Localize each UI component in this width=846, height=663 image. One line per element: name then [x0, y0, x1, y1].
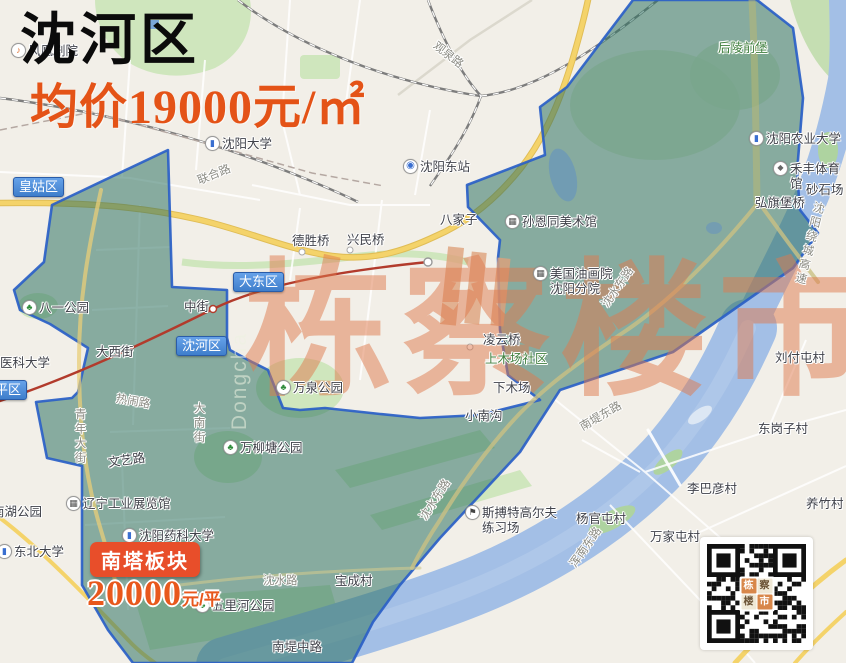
qr-logo-tile: 楼 [741, 594, 756, 609]
map-label: 上木场社区 [485, 352, 548, 367]
map-label: 沈阳大学 [222, 137, 272, 152]
qr-logo-tile: 栋 [741, 578, 756, 593]
map-label: 观泉路 [430, 40, 466, 72]
map-label: 东北大学 [14, 545, 64, 560]
qr-code: 栋察楼市 [700, 537, 813, 650]
map-label: 砂石场 [806, 183, 844, 198]
map-label: 李巴彦村 [687, 482, 737, 497]
map-label: 大南街 [191, 402, 205, 446]
map-label: 五里河公园 [212, 599, 275, 614]
map-label: 沈阳农业大学 [766, 132, 841, 147]
nanta-price-unit: 元/平 [182, 590, 221, 609]
qr-center-logo: 栋察楼市 [739, 576, 774, 611]
museum-icon: ▦ [533, 266, 548, 281]
map-label: 中街 [184, 300, 209, 315]
nanta-price: 20000元/平 [87, 572, 221, 614]
map-label: 刘付屯村 [775, 351, 825, 366]
museum-icon: ▦ [66, 496, 81, 511]
map-label: 辽宁工业展览馆 [83, 497, 171, 512]
map-label: 热闹路 [115, 393, 151, 412]
map-label: 弘旗堡桥 [755, 196, 805, 211]
map-label: 沈水东路 [418, 477, 454, 523]
map-label: 杨官屯村 [576, 512, 626, 527]
district-name-badge: 大东区 [233, 272, 284, 292]
map-label: 浑南东路 [568, 525, 605, 570]
map-label: 联合路 [196, 163, 233, 188]
map-label: 斯搏特高尔夫 练习场 [482, 506, 557, 536]
golf-icon: ⚑ [465, 505, 480, 520]
map-label: 凌云桥 [483, 333, 521, 348]
bus-icon: ▮ [0, 544, 12, 559]
district-title: 沈河区 [20, 12, 200, 68]
park-icon: ♣ [223, 440, 238, 455]
nanta-price-value: 20000 [87, 573, 182, 613]
map-label: 万泉公园 [293, 381, 343, 396]
map-label: 养竹村 [806, 497, 844, 512]
map-label: 美国油画院 沈阳分院 [550, 267, 613, 297]
average-price-title: 均价19000元/㎡ [30, 84, 365, 132]
map-label: 沈水路 [263, 575, 298, 589]
map-label: 文艺路 [107, 451, 146, 471]
map-label: 大西街 [96, 345, 134, 360]
park-icon: ♣ [276, 380, 291, 395]
stadium-icon: ◆ [773, 161, 788, 176]
rail-icon: ◉ [403, 159, 418, 174]
map-label: 八一公园 [39, 301, 89, 316]
map-label: 南堤东路 [578, 400, 625, 435]
map-label: 东岗子村 [758, 422, 808, 437]
map-label: 医科大学 [0, 356, 50, 371]
bus-icon: ▮ [749, 131, 764, 146]
map-canvas[interactable]: 栋察楼市 Dongcha 沈阳大学▮沈阳东站◉观泉路联合路八家子德胜桥兴民桥孙恩… [0, 0, 846, 663]
map-label: 沈阳东站 [420, 160, 470, 175]
map-label: 宝成村 [335, 574, 373, 589]
museum-icon: ▦ [505, 214, 520, 229]
park-icon: ♣ [22, 300, 37, 315]
map-label: 南湖公园 [0, 505, 42, 520]
map-label: 万家屯村 [650, 530, 700, 545]
map-label: 兴民桥 [347, 233, 385, 248]
map-label: 青年大街 [72, 408, 86, 466]
map-label: 八家子 [440, 213, 478, 228]
map-label: 德胜桥 [292, 234, 330, 249]
map-label: 万柳塘公园 [240, 441, 303, 456]
bus-icon: ▮ [205, 136, 220, 151]
district-name-badge: 和平区 [0, 380, 27, 400]
district-name-badge: 沈河区 [176, 336, 227, 356]
map-label: 南堤中路 [272, 640, 322, 655]
district-name-badge: 皇姑区 [13, 177, 64, 197]
map-label: 下木场 [493, 381, 531, 396]
map-label: 沈阳绕城高速 [791, 200, 825, 288]
qr-logo-tile: 察 [757, 578, 772, 593]
qr-logo-tile: 市 [757, 594, 772, 609]
map-label: 小南沟 [465, 409, 503, 424]
bus-icon: ▮ [122, 528, 137, 543]
map-label: 孙恩同美术馆 [522, 215, 597, 230]
map-label: 后陵前堡 [718, 41, 768, 56]
